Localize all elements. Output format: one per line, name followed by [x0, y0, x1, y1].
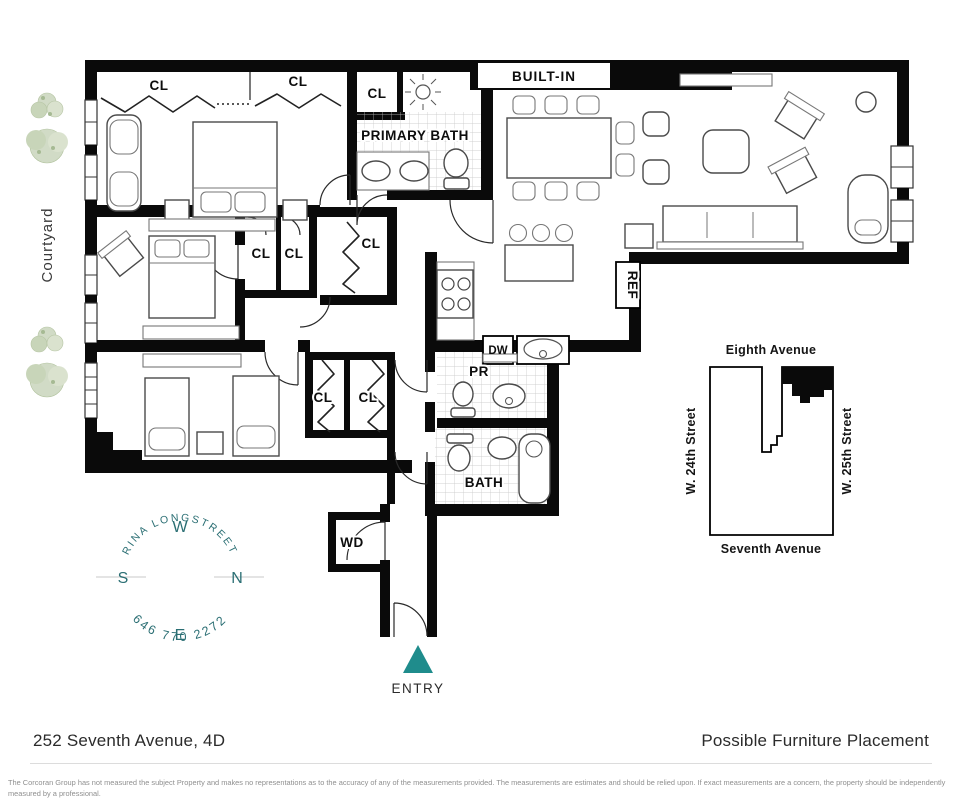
- ottoman: [643, 112, 669, 136]
- built-in-label: BUILT-IN: [512, 69, 576, 84]
- armchair: [772, 92, 825, 141]
- ottoman: [643, 160, 669, 184]
- stove: [437, 270, 473, 318]
- map-seventh-avenue-label: Seventh Avenue: [721, 542, 822, 556]
- stool: [533, 225, 550, 242]
- dresser: [143, 354, 241, 367]
- light-icon: [405, 74, 441, 110]
- side-table: [625, 224, 653, 248]
- sink: [400, 161, 428, 181]
- entry-arrow-icon: [403, 645, 433, 673]
- entry-label: ENTRY: [391, 681, 444, 696]
- courtyard-label: Courtyard: [39, 208, 56, 283]
- primary-bath-label: PRIMARY BATH: [361, 128, 469, 143]
- armchair: [768, 147, 820, 195]
- island: [505, 245, 573, 281]
- sink: [488, 437, 516, 459]
- toilet: [448, 445, 470, 471]
- address-title: 252 Seventh Avenue, 4D: [33, 731, 225, 751]
- coffee-table: [703, 130, 749, 173]
- round-table: [856, 92, 876, 112]
- primary-bedroom: [107, 115, 307, 220]
- powder-room-label: PR: [469, 364, 489, 379]
- washer-dryer-label: WD: [340, 535, 364, 550]
- bath-label: BATH: [465, 475, 504, 490]
- dining-table: [507, 118, 611, 178]
- stool: [556, 225, 573, 242]
- disclaimer-text: The Corcoran Group has not measured the …: [8, 777, 954, 800]
- sink: [362, 161, 390, 181]
- closet-label: CL: [150, 78, 169, 93]
- location-map: Eighth Avenue Seventh Avenue W. 24th Str…: [684, 343, 854, 556]
- floorplan-canvas: Courtyard: [0, 0, 962, 712]
- sofa: [663, 206, 797, 242]
- compass-north: N: [231, 570, 243, 587]
- chair: [98, 231, 146, 278]
- map-w24-street-label: W. 24th Street: [684, 407, 698, 494]
- closet-label: CL: [252, 246, 271, 261]
- closet-label: CL: [368, 86, 387, 101]
- closet-label: CL: [359, 390, 378, 405]
- closet-label: CL: [285, 246, 304, 261]
- console: [680, 74, 772, 86]
- map-eighth-avenue-label: Eighth Avenue: [726, 343, 816, 357]
- closet-label: CL: [362, 236, 381, 251]
- dishwasher-label: DW: [488, 345, 507, 357]
- footer-divider: [30, 763, 932, 764]
- toilet: [444, 149, 468, 177]
- compass-south: S: [118, 570, 129, 587]
- dresser: [149, 219, 275, 231]
- refrigerator-label: REF: [625, 271, 640, 300]
- stool: [510, 225, 527, 242]
- furniture-placement-title: Possible Furniture Placement: [701, 731, 929, 751]
- entry-marker: ENTRY: [391, 645, 444, 696]
- bedroom-3: [143, 354, 279, 456]
- toilet: [453, 382, 473, 406]
- nightstand: [197, 432, 223, 454]
- living-room: [625, 74, 888, 249]
- map-w25-street-label: W. 25th Street: [840, 407, 854, 494]
- floorplan-page: Courtyard: [0, 0, 962, 800]
- compass-rose: W N E S RINA LONGSTREET 646 770 2272: [96, 512, 264, 644]
- bathtub: [519, 434, 550, 503]
- closet-label: CL: [314, 390, 333, 405]
- closet-label: CL: [289, 74, 308, 89]
- dresser: [143, 326, 239, 339]
- bedroom-2: [98, 219, 275, 339]
